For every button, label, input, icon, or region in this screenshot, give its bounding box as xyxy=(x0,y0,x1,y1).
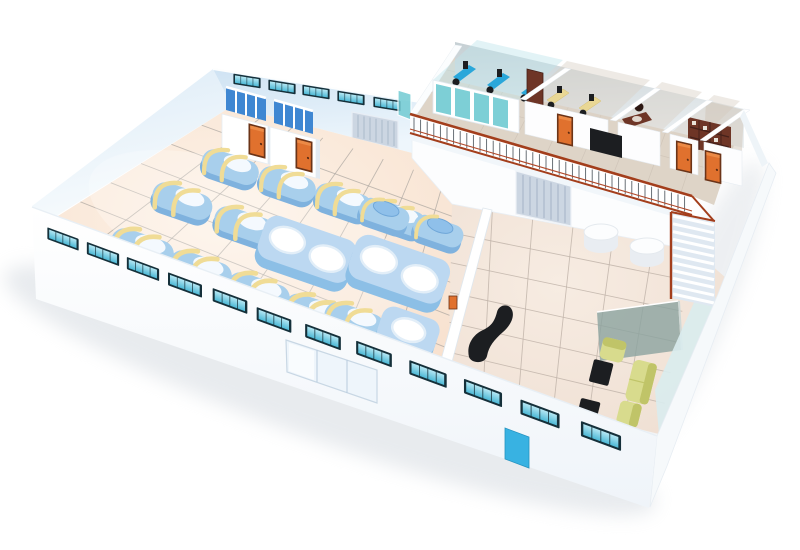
washroom-block-1 xyxy=(222,87,272,165)
desk-blotter xyxy=(632,116,642,122)
office-door xyxy=(557,113,573,146)
round-table xyxy=(630,238,664,267)
factory-floorplan-rendering xyxy=(0,0,800,550)
washroom-door xyxy=(296,137,313,172)
washroom-door xyxy=(249,123,266,158)
round-table xyxy=(584,224,618,253)
wall-mounted-sign xyxy=(449,296,457,309)
staircase xyxy=(671,212,715,307)
office-door xyxy=(676,140,692,173)
mezzanine-corner-glass xyxy=(398,90,411,120)
office-door xyxy=(705,150,722,184)
isometric-scene xyxy=(0,0,800,550)
mezzanine-right-wall xyxy=(740,110,768,167)
